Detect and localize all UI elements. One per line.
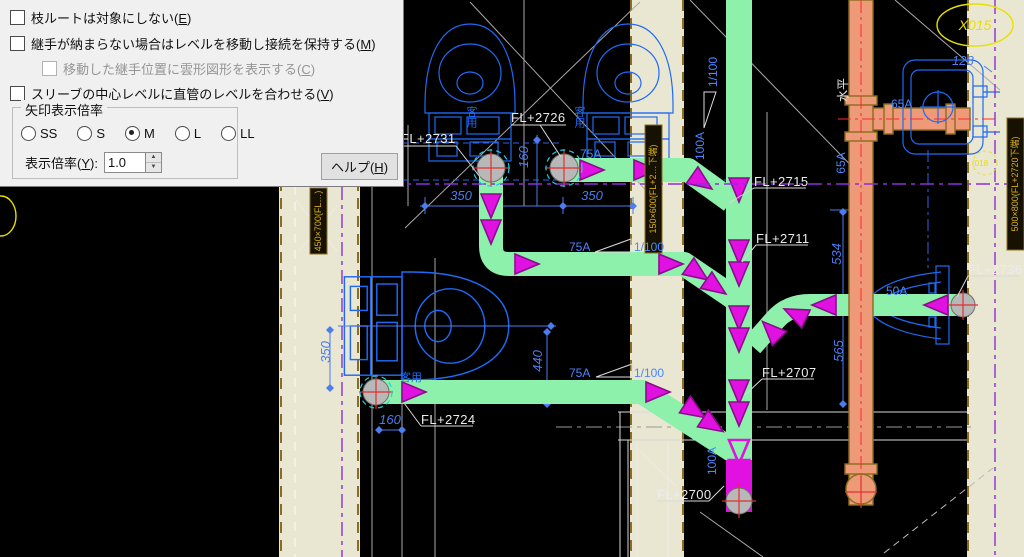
scale-label: 表示倍率(Y): <box>25 153 98 172</box>
level-label-fl2700: FL+2700 <box>657 487 711 502</box>
level-note: 水平 <box>836 78 850 102</box>
room-label-1: 客用 <box>465 105 478 129</box>
size-75a-top: 75A <box>580 147 601 161</box>
radio-ll[interactable]: LL <box>221 126 254 141</box>
slope-vertical: 1/100 <box>706 57 720 87</box>
route-options-dialog: 枝ルートは対象にしない(E) 継手が納まらない場合はレベルを移動し接続を保持する… <box>0 0 404 187</box>
arrow-scale-radios: SS S M L LL <box>21 126 255 141</box>
dim-534: 534 <box>829 243 844 265</box>
checkbox-branch-route[interactable] <box>10 10 25 25</box>
slope-low: 1/100 <box>634 366 664 380</box>
room-label-2: 客用 <box>573 105 586 129</box>
checkbox-move-level[interactable] <box>10 36 25 51</box>
checkbox-move-level-label: 継手が納まらない場合はレベルを移動し接続を保持する(M) <box>31 34 376 53</box>
level-label-fl2715: FL+2715 <box>754 174 808 189</box>
size-65a-h: 65A <box>891 97 912 111</box>
checkbox-branch-route-label: 枝ルートは対象にしない(E) <box>31 8 191 27</box>
level-label-fl2731: FL+2731 <box>401 131 455 146</box>
dim-160-b: 160 <box>379 412 401 427</box>
level-label-fl2711: FL+2711 <box>756 231 810 246</box>
dim-440: 440 <box>530 349 545 371</box>
size-75a-low: 75A <box>569 366 590 380</box>
radio-m[interactable]: M <box>125 126 155 141</box>
sleeve-tag-right: 500×800(FL+2720下端) <box>1009 136 1020 231</box>
size-75a-mid: 75A <box>569 240 590 254</box>
checkbox-cloud-mark-label: 移動した継手位置に雲形図形を表示する(C) <box>63 59 315 78</box>
small-yellow-tag: (018 <box>972 159 989 168</box>
level-label-fl2736: FL+2736 <box>968 262 1022 277</box>
dim-160-v: 160 <box>516 145 531 167</box>
radio-l[interactable]: L <box>175 126 201 141</box>
size-50a: 50A <box>886 284 907 298</box>
dim-565: 565 <box>831 339 846 361</box>
level-label-fl2707: FL+2707 <box>762 365 816 380</box>
dim-350-v: 350 <box>318 340 333 362</box>
checkbox-row-cloud-mark: 移動した継手位置に雲形図形を表示する(C) <box>42 59 315 78</box>
scale-value-input[interactable] <box>104 152 145 173</box>
size-65a-v: 65A <box>834 152 848 173</box>
level-label-fl2724: FL+2724 <box>421 412 475 427</box>
radio-ss[interactable]: SS <box>21 126 57 141</box>
sleeve-tag-middle: 150×600(FL+2…下端) <box>647 144 658 233</box>
spinner-down-icon[interactable]: ▼ <box>146 163 161 172</box>
size-100a-bottom: 100A <box>705 447 719 475</box>
checkbox-row-branch-route[interactable]: 枝ルートは対象にしない(E) <box>10 8 191 27</box>
level-label-fl2726: FL+2726 <box>511 110 565 125</box>
slope-mid: 1/100 <box>634 240 664 254</box>
app-window: 450×700(FL…) 150×600(FL+2…下端) 500×800(FL… <box>0 0 1024 557</box>
dim-350-a: 350 <box>450 188 472 203</box>
help-button[interactable]: ヘルプ(H) <box>321 153 398 180</box>
checkbox-row-move-level[interactable]: 継手が納まらない場合はレベルを移動し接続を保持する(M) <box>10 34 376 53</box>
help-button-label: ヘルプ(H) <box>331 157 388 176</box>
spinner-up-icon[interactable]: ▲ <box>146 153 161 163</box>
arrow-scale-group: 矢印表示倍率 SS S M L LL 表示倍率(Y): ▲ ▼ <box>12 107 238 179</box>
balloon-x015: X015 <box>958 17 992 33</box>
scale-row: 表示倍率(Y): ▲ ▼ <box>25 152 162 173</box>
room-label-3: 客用 <box>400 370 422 384</box>
checkbox-cloud-mark <box>42 61 57 76</box>
arrow-scale-group-title: 矢印表示倍率 <box>21 100 107 119</box>
checkbox-sleeve-center[interactable] <box>10 86 25 101</box>
size-100a-top: 100A <box>693 132 707 160</box>
sleeve-tag-left: 450×700(FL…) <box>313 191 323 252</box>
radio-s[interactable]: S <box>77 126 105 141</box>
dim-350-b: 350 <box>581 188 603 203</box>
dim-128: 128 <box>952 53 974 68</box>
